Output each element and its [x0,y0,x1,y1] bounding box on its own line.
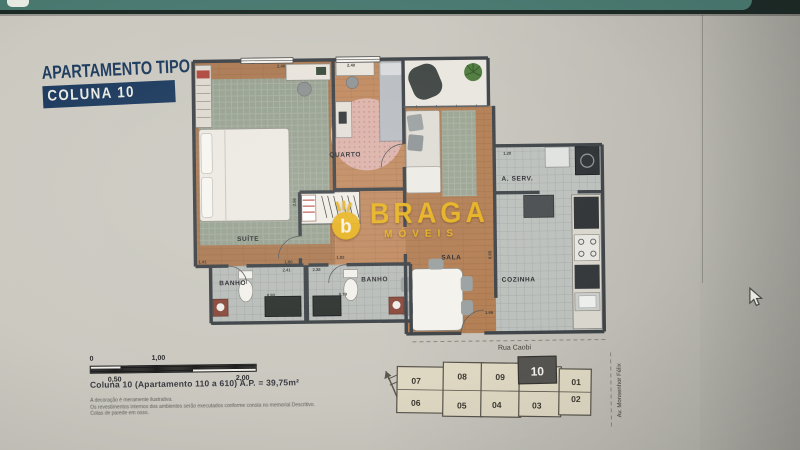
label-sala: SALA [441,254,461,261]
street-right-dashed-line [611,352,612,428]
unit-03: 03 [532,400,542,410]
scale-bar-bottom [90,368,257,374]
page-right-edge [702,15,703,283]
stove [574,235,599,261]
dim-banho-left-depth: 0.90 [267,293,276,298]
top-bezel-shadow [0,14,800,16]
street-top-dashed-line [412,339,607,341]
top-left-notch [7,0,29,7]
suite-shelf-items [197,70,210,78]
fridge [574,197,599,229]
label-banho-right: BANHO [361,276,388,283]
dining-table [411,268,464,331]
closet-shelf [302,195,316,221]
label-suite: SUÍTE [237,234,259,243]
quarto-pillow [381,63,402,75]
dim-quarto-top: 2.40 [347,63,356,68]
oven [575,265,600,289]
dim-area-servico: 1.20 [503,151,512,156]
unit-05: 05 [457,400,467,410]
unit-01: 01 [571,377,581,387]
building-key-plan: Rua Caobi Av. Monsenhor Félix [382,336,627,435]
toilet-right [344,279,358,301]
dining-chair-3 [461,276,473,291]
shower-left [265,296,301,316]
sala-rug-texture [442,110,477,196]
unit-caption: Coluna 10 (Apartamento 110 a 610) A.P. =… [90,377,299,390]
scale-tick-0: 0 [90,356,94,363]
street-right-label: Av. Monsenhor Félix [617,363,624,417]
dim-suite-bottom-left: 1.41 [198,259,207,264]
dim-hall-right: 1.83 [336,255,345,260]
logo-brand-text: BRAGA [370,199,489,228]
unit-06: 06 [411,398,421,408]
label-banho-left: BANHO [219,280,246,287]
sofa-chaise [406,167,440,193]
screen-top-bezel [0,0,800,14]
dim-suite-side: 3.56 [292,198,297,207]
quarto-monitor [339,112,347,124]
window-top-edge [0,0,752,10]
braga-moveis-watermark: b BRAGA MÓVEIS [330,199,489,241]
unit-09: 09 [495,372,505,382]
suite-pillow-2 [201,177,212,217]
street-top-label: Rua Caobi [498,344,532,351]
braga-b-icon: b [330,200,364,240]
dining-chair-4 [461,300,473,315]
screen-photo: APARTAMENTO TIPO COLUNA 10 [0,0,800,450]
unit-10-label: 10 [531,364,545,378]
label-cozinha: COZINHA [502,276,536,283]
key-plan-drawing: Rua Caobi Av. Monsenhor Félix [382,336,627,435]
sofa-cushion-2 [407,134,423,151]
scale-tick-100: 1,00 [152,355,166,362]
cursor-arrow-icon [748,287,764,307]
sofa-cushion-1 [407,114,424,132]
kitchen-sink-bowl [579,296,596,308]
dim-banho-right-width: 2.38 [312,267,321,272]
mouse-cursor [748,287,764,312]
label-quarto: QUARTO [329,151,361,158]
disclaimer-line-3: Cotas de parede em osso. [90,408,315,417]
shower-right [313,296,341,316]
dim-suite-top: 2.40 [277,63,286,68]
suite-chair [297,82,311,96]
building-outline: 07 08 09 01 06 05 04 03 02 10 [397,354,592,418]
braga-logo-icon: b [330,200,364,240]
logo-letter: b [340,217,352,238]
dim-banho-right-depth: 0.79 [339,292,348,297]
logo-wordmark: BRAGA MÓVEIS [370,199,489,240]
logo-subtitle-text: MÓVEIS [384,228,489,240]
suite-pillow-1 [201,133,212,173]
kitchen-cabinet [524,195,554,217]
unit-07: 07 [411,376,421,386]
label-area-servico: A. SERV. [501,175,533,182]
quarto-chair [346,76,358,88]
disclaimer-text: A decoração é meramente ilustrativa. Os … [90,395,315,417]
page-content: APARTAMENTO TIPO COLUNA 10 [0,0,800,450]
dim-cozinha-bottom: 1.66 [485,310,494,315]
laundry-tank [545,147,569,167]
washing-machine [575,147,599,175]
logo-rays [337,201,351,211]
dim-cozinha-height: 6.65 [487,250,492,259]
unit-08: 08 [457,371,467,381]
banho-divider-wall [303,265,309,322]
unit-02: 02 [571,394,581,404]
unit-04: 04 [492,400,502,410]
toilet-tank-right [344,270,358,278]
dim-closet: 1.90 [284,259,293,264]
highlighted-unit-10: 10 [518,356,557,384]
dim-banho-left-width: 2.41 [282,267,291,272]
page-subtitle: COLUNA 10 [42,80,175,108]
suite-laptop [316,67,326,75]
